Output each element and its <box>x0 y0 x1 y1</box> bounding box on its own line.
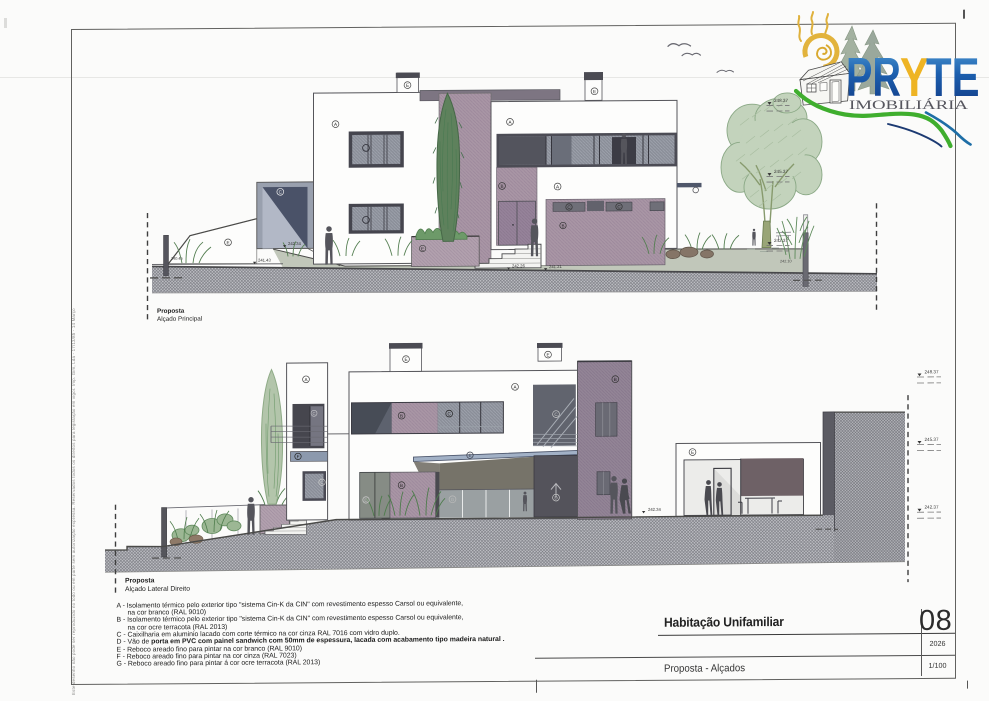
svg-text:242.10: 242.10 <box>780 259 792 263</box>
svg-text:E: E <box>468 453 471 458</box>
svg-text:E: E <box>406 83 409 88</box>
svg-text:B: B <box>561 223 564 228</box>
svg-text:242.37: 242.37 <box>774 238 788 243</box>
svg-text:B: B <box>500 184 503 189</box>
svg-text:Proposta: Proposta <box>157 308 185 315</box>
svg-text:240.45: 240.45 <box>171 257 183 261</box>
svg-text:E: E <box>226 240 229 245</box>
svg-text:242.34: 242.34 <box>288 241 301 246</box>
svg-text:B: B <box>614 377 617 382</box>
svg-text:B: B <box>400 483 403 488</box>
svg-text:242.37: 242.37 <box>925 505 939 510</box>
svg-text:IMOBILIÁRIA: IMOBILIÁRIA <box>849 98 969 112</box>
svg-text:E: E <box>691 450 694 455</box>
svg-text:Proposta: Proposta <box>125 577 155 584</box>
svg-text:245.37: 245.37 <box>925 437 939 442</box>
svg-text:G: G <box>451 497 455 502</box>
svg-text:E: E <box>593 89 596 94</box>
svg-text:E: E <box>421 246 424 251</box>
svg-text:C: C <box>312 411 315 416</box>
svg-text:Alçado Lateral Direito: Alçado Lateral Direito <box>125 586 190 593</box>
svg-text:242.26: 242.26 <box>512 263 525 268</box>
svg-text:E: E <box>546 352 549 357</box>
svg-text:242.34: 242.34 <box>648 507 661 512</box>
svg-text:248.37: 248.37 <box>925 369 939 374</box>
svg-text:E: E <box>404 357 407 362</box>
svg-text:F: F <box>297 454 300 459</box>
svg-text:241.43: 241.43 <box>258 258 271 263</box>
svg-text:B: B <box>400 413 403 418</box>
svg-text:241.21: 241.21 <box>549 264 562 269</box>
svg-text:Alçado Principal: Alçado Principal <box>157 316 202 323</box>
svg-text:245.37: 245.37 <box>774 169 788 174</box>
